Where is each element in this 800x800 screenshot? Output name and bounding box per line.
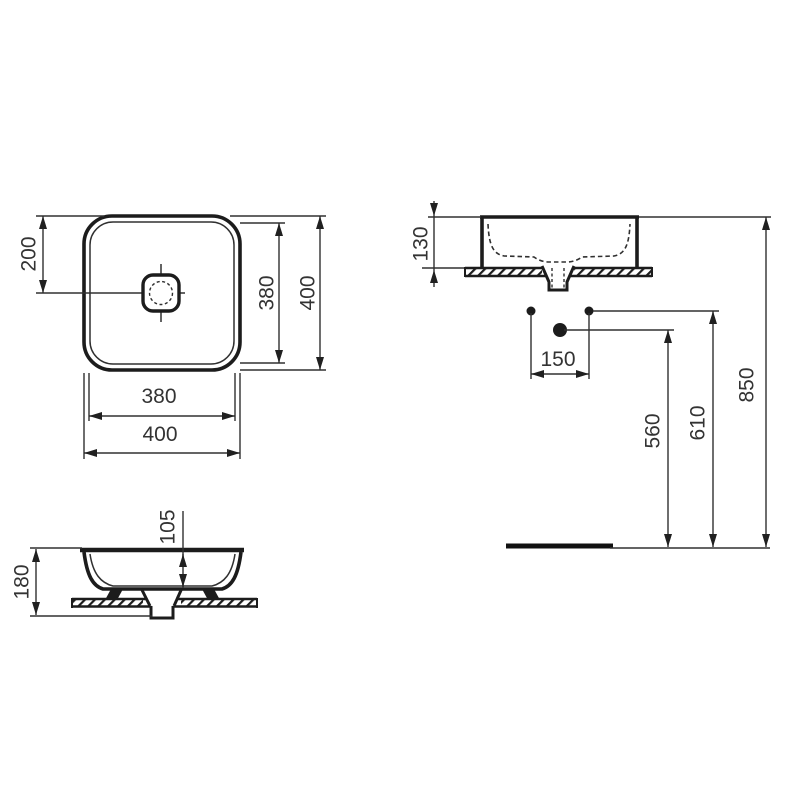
washbasin-drawing: 200 380 400 380 400	[0, 0, 800, 800]
dim-label-rim-floor-height: 850	[735, 367, 758, 402]
drain-trap-side	[542, 266, 574, 290]
drain-front	[141, 588, 182, 618]
bowl-inner-profile	[90, 554, 235, 586]
drain-square-outline	[143, 275, 179, 311]
counter-hatch-left	[73, 600, 143, 606]
dim-label-outer-depth: 400	[296, 275, 319, 310]
dim-label-bowl-depth: 105	[156, 509, 179, 544]
basin-side	[480, 217, 639, 267]
dim-plan-inner-depth: 380	[240, 223, 285, 363]
dim-label-rim-above-counter: 130	[409, 226, 432, 261]
counter-hatch-left	[467, 269, 542, 276]
drain-pipe-fill	[150, 606, 174, 618]
floor-line	[506, 546, 770, 548]
dim-label-overall-height: 180	[10, 564, 33, 599]
dim-side-hole-spacing: 150	[531, 348, 589, 374]
plan-view: 200 380 400 380 400	[17, 216, 326, 459]
dim-label-drain-outlet-height: 560	[641, 413, 664, 448]
dim-label-hole-height: 610	[686, 405, 709, 440]
dim-label-center-offset: 200	[17, 236, 40, 271]
side-view: 150 130 560 610	[409, 201, 771, 548]
technical-drawing-canvas: 200 380 400 380 400	[0, 0, 800, 800]
dim-side-drain-outlet-height: 560	[564, 330, 674, 547]
dim-label-inner-depth: 380	[255, 275, 278, 310]
dim-label-inner-width: 380	[141, 385, 176, 408]
dim-side-rim-floor-height: 850	[639, 217, 771, 547]
drain-plan	[36, 264, 185, 322]
dim-label-hole-spacing: 150	[540, 348, 575, 371]
dim-label-outer-width: 400	[142, 423, 177, 446]
counter-hatch-right	[181, 600, 256, 606]
front-view: 105 180	[10, 509, 257, 618]
dim-plan-inner-width: 380	[89, 373, 235, 421]
counter-hatch-right	[574, 269, 651, 276]
basin-front	[80, 550, 244, 589]
bowl-inner-profile-dashed	[488, 224, 630, 262]
